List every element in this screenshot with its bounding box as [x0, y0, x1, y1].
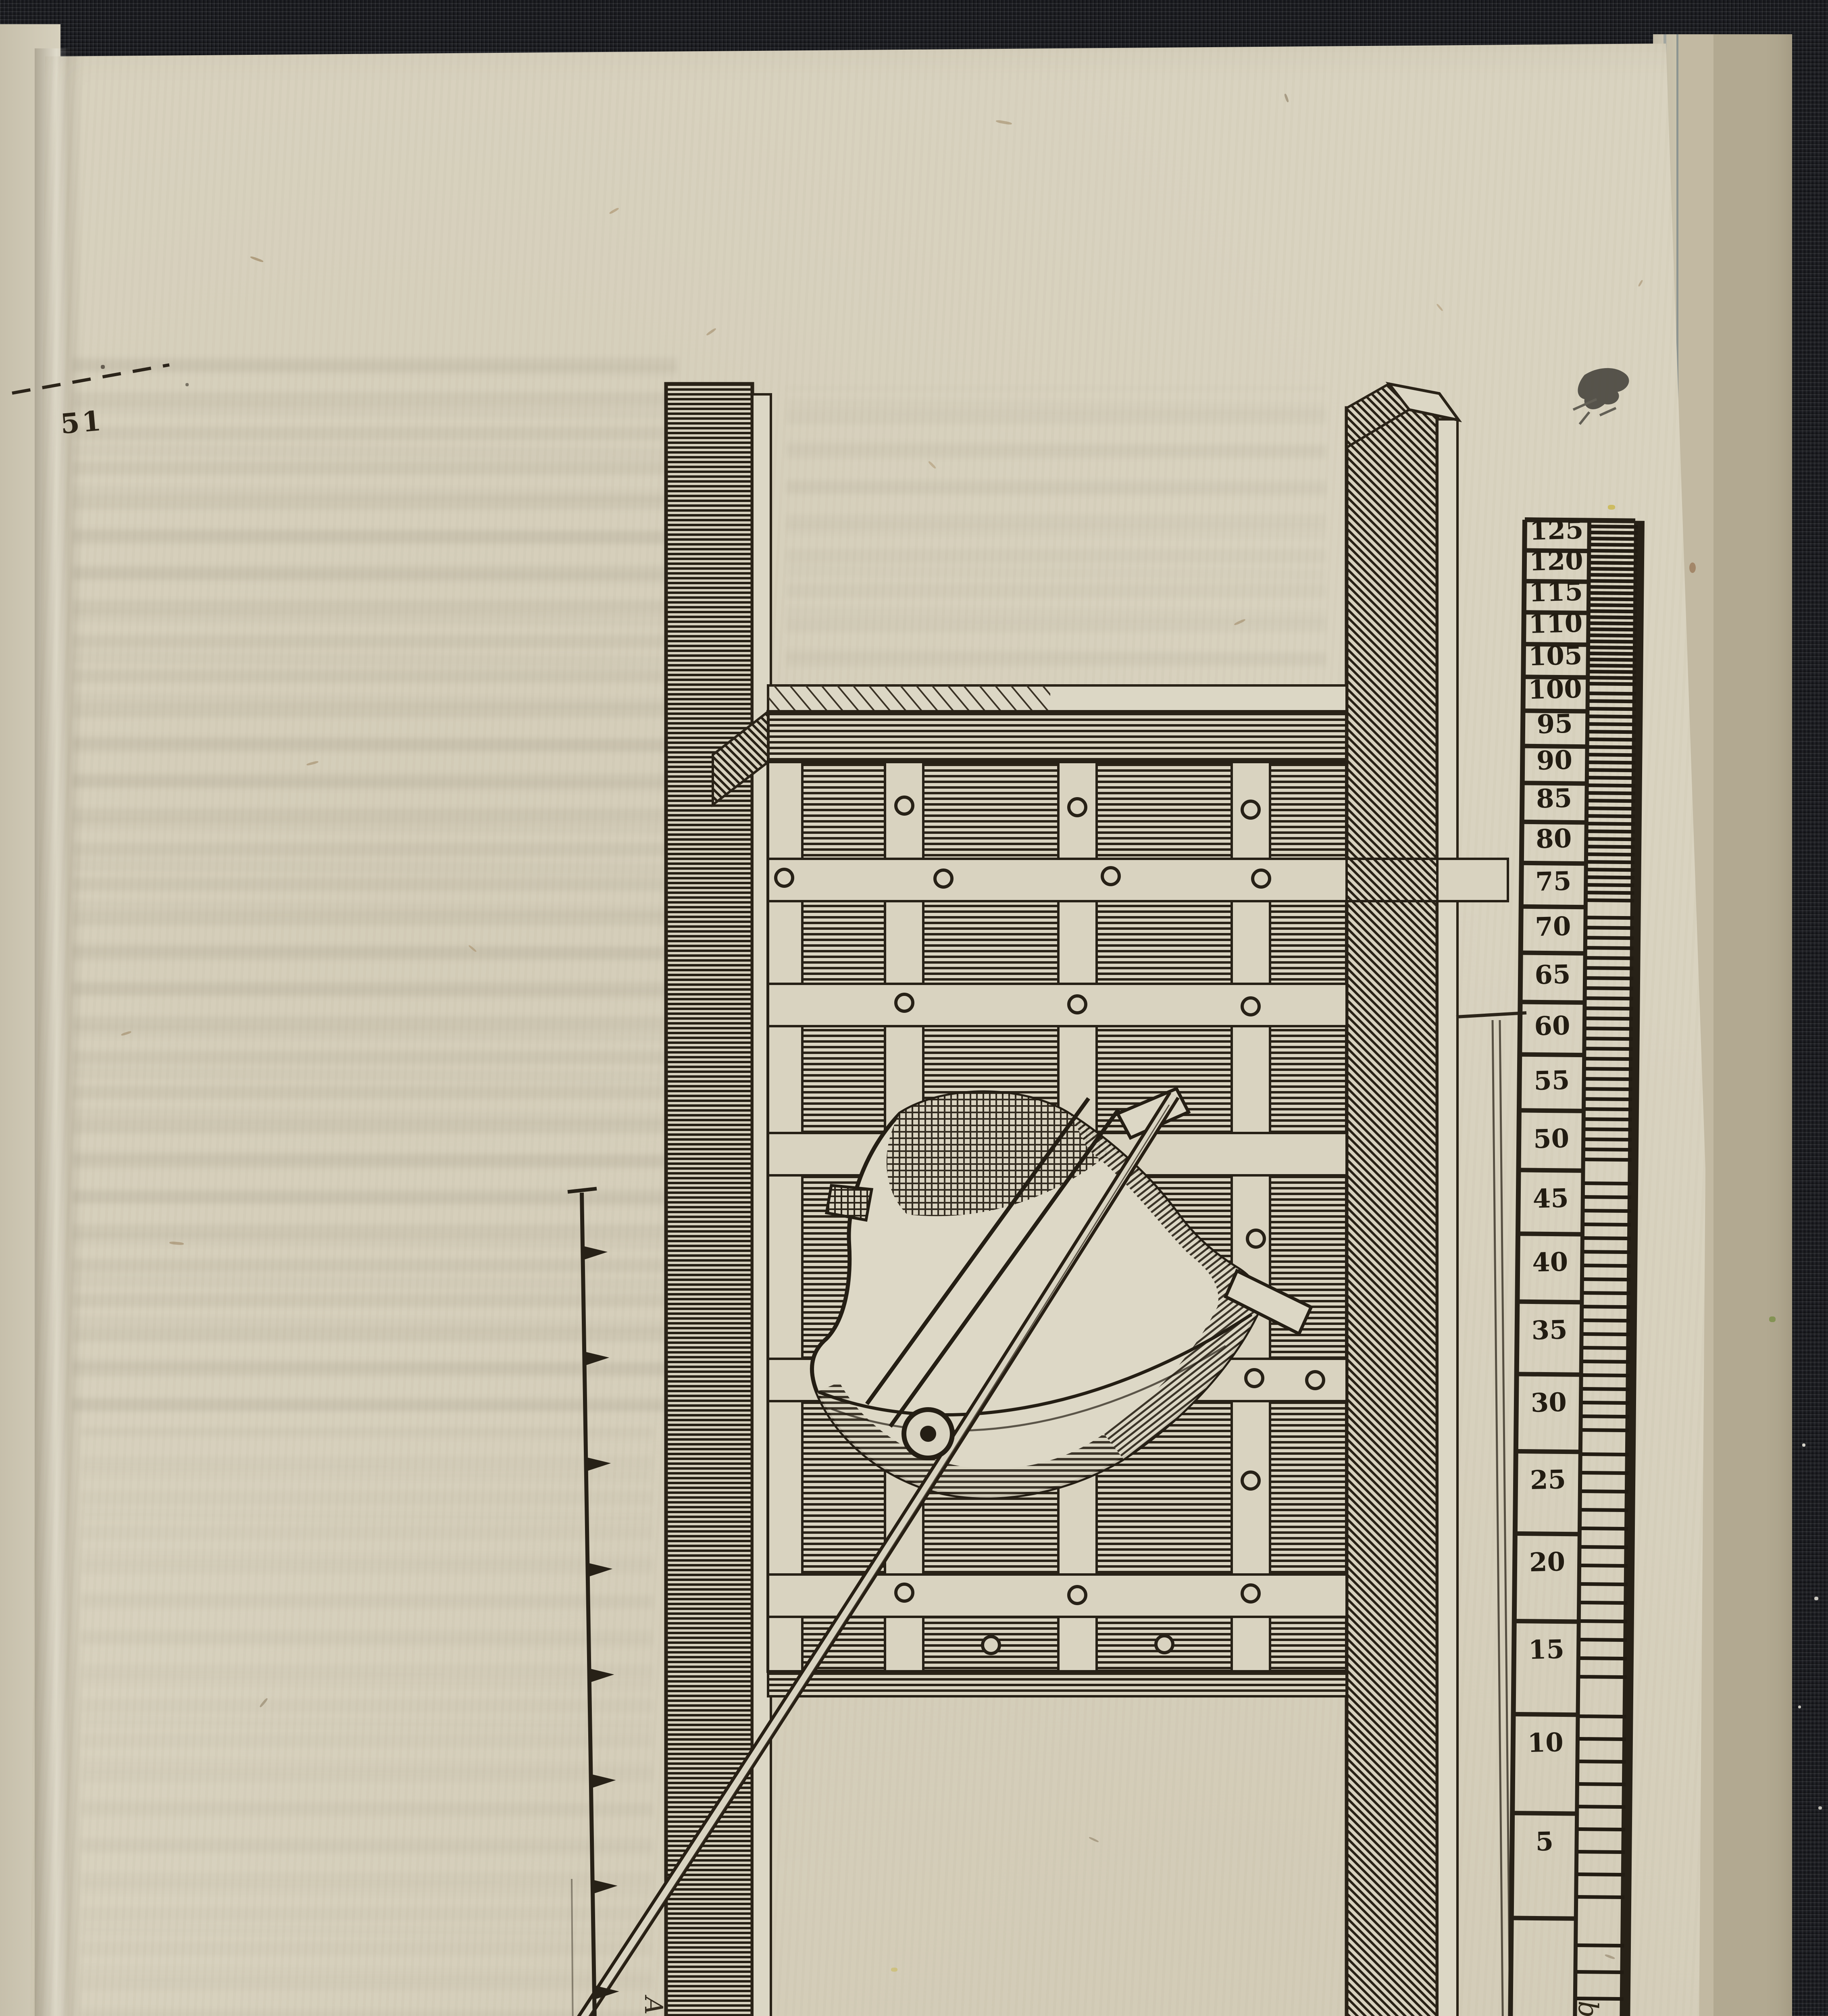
ruler-hatch-rung [1591, 569, 1637, 569]
beam-front-face [768, 712, 1347, 762]
ruler-hatch-rung [1591, 539, 1638, 539]
ruler-hatch-rung [1590, 641, 1636, 642]
book-scan: 1251201151101051009590858075706560555045… [0, 0, 1828, 2016]
measure-line [582, 1193, 604, 2016]
ruler-value: 110 [1528, 608, 1583, 639]
ruler-hatch-rung [1581, 1547, 1628, 1547]
ruler-hatch-rung [1579, 1761, 1626, 1762]
paper-fleck [185, 383, 189, 386]
measure-tick [587, 1563, 612, 1577]
ruler-hatch-rung [1591, 575, 1637, 575]
ruler-hatch-rung [1578, 1829, 1625, 1829]
rivet [896, 994, 913, 1011]
ruler-value: 75 [1535, 866, 1572, 897]
rivet [776, 869, 793, 886]
ruler-hatch-rung [1589, 724, 1636, 725]
ruler-hatch-rung [1590, 617, 1637, 618]
ruler-hatch-rung [1588, 801, 1635, 801]
paper-fleck [1798, 1706, 1801, 1708]
ruler-hatch-rung [1582, 1403, 1629, 1403]
ruler-hatch-rung [1586, 1039, 1633, 1039]
paper-fleck [101, 365, 105, 369]
ruler-hatch-rung [1590, 629, 1636, 630]
right-post-side-face [1437, 419, 1457, 2016]
ruler-hatch-rung [1591, 581, 1637, 581]
ruler-line [1517, 1374, 1581, 1375]
ruler-hatch-rung [1584, 1279, 1630, 1280]
ruler-hatch-rung [1586, 978, 1633, 979]
ruler-hatch-rung [1591, 557, 1637, 557]
ruler-line [1520, 1054, 1584, 1055]
ruler-hatch-rung [1586, 988, 1633, 989]
ruler-right-border [1619, 521, 1639, 2016]
ruler-hatch-rung [1587, 938, 1634, 938]
ruler-hatch-rung [1583, 1320, 1630, 1321]
ruler-hatch-rung [1588, 808, 1635, 809]
ruler-hatch-rung [1584, 1197, 1631, 1198]
ruler-value: 30 [1530, 1387, 1567, 1418]
ruler-value: 35 [1531, 1315, 1568, 1346]
measure-line-top-bar [568, 1189, 597, 1192]
rivet [896, 797, 913, 814]
ruler-value: 95 [1537, 709, 1573, 740]
ruler-hatch-rung [1582, 1416, 1629, 1417]
ruler-hatch-rung [1584, 1183, 1631, 1184]
paper-fleck [1608, 505, 1615, 510]
ruler-line [1522, 822, 1586, 823]
measuring-line [568, 1189, 627, 2016]
measure-tick [584, 1352, 609, 1365]
ruler-hatch-rung [1580, 1677, 1626, 1677]
ruler-hatch-rung [1590, 623, 1637, 624]
ruler-hatch-rung [1584, 1293, 1630, 1293]
ruler-value: 65 [1534, 959, 1571, 990]
rivet [1253, 870, 1270, 887]
ruler-hatch-rung [1578, 1897, 1624, 1897]
ruler-hatch-rung [1585, 1139, 1632, 1140]
ruler-line [1514, 1714, 1578, 1715]
ruler-hatch-rung [1580, 1658, 1627, 1659]
ruler-hatch-rung [1585, 1150, 1632, 1150]
ruler-hatch-rung [1587, 900, 1634, 901]
rivet [1156, 1636, 1173, 1653]
ruler-hatch-rung [1585, 1099, 1632, 1100]
ruler-hatch-rung [1590, 599, 1637, 600]
rivet [1246, 1370, 1263, 1387]
ruler-hatch-rung [1590, 587, 1637, 587]
ruler-hatch-rung [1583, 1334, 1630, 1335]
ruler-hatch-rung [1588, 854, 1634, 855]
ruler-hatch-rung [1586, 968, 1633, 968]
ruler-hatch-rung [1589, 747, 1636, 748]
ruler-hatch-rung [1577, 1998, 1624, 1999]
ruler-hatch-rung [1586, 1008, 1633, 1009]
ruler-hatch-rung [1587, 928, 1634, 928]
ruler-value: 15 [1528, 1634, 1565, 1665]
rivet [1247, 1230, 1264, 1247]
ruler-value: 70 [1534, 911, 1571, 942]
ruler-hatch-rung [1587, 958, 1634, 958]
graduated-ruler: 1251201151101051009590858075706560555045… [1505, 514, 1639, 2016]
ruler-hatch-rung [1589, 716, 1636, 717]
ruler-hatch-rung [1582, 1430, 1629, 1431]
right-scale-label: bley kugel [1572, 2001, 1603, 2016]
ruler-hatch-rung [1586, 1059, 1632, 1059]
rivet [1242, 1585, 1259, 1602]
ruler-line [1519, 1170, 1583, 1171]
ruler-hatch-rung [1578, 1874, 1625, 1874]
dashed-margin-line [12, 365, 169, 393]
ruler-line [1520, 1002, 1585, 1003]
ruler-value: 90 [1536, 745, 1573, 776]
ruler-hatch-rung [1589, 694, 1636, 694]
ruler-hatch-rung [1586, 1049, 1632, 1049]
ruler-hatch-rung [1585, 1119, 1632, 1120]
ruler-hatch-rung [1580, 1621, 1627, 1622]
rivet [983, 1637, 999, 1654]
ruler-hatch-rung [1588, 831, 1635, 832]
ruler-line [1521, 953, 1585, 954]
ruler-hatch-rung [1589, 770, 1635, 771]
ruler-hatch-rung [1584, 1252, 1631, 1252]
ruler-hatch-rung [1589, 739, 1636, 740]
ruler-hatch-rung [1590, 605, 1637, 606]
rivet [1069, 996, 1086, 1013]
ruler-hatch-rung [1587, 885, 1634, 885]
ruler-hatch-rung [1583, 1348, 1630, 1348]
ruler-hatch-rung [1582, 1454, 1629, 1455]
ruler-hatch-rung [1581, 1529, 1628, 1529]
ruler-value: 120 [1529, 545, 1583, 577]
ruler-hatch-rung [1582, 1473, 1628, 1473]
ruler-hatch-rung [1585, 1109, 1632, 1110]
ruler-hatch-rung [1591, 563, 1637, 563]
ruler-hatch-rung [1586, 1069, 1632, 1069]
ruler-hatch-rung [1585, 1160, 1632, 1160]
ruler-hatch-rung [1589, 762, 1635, 763]
ruler-hatch-rung [1588, 816, 1635, 816]
rivet [896, 1584, 913, 1601]
ruler-hatch-rung [1588, 877, 1634, 878]
engraving-plate: 1251201151101051009590858075706560555045… [0, 0, 1828, 2016]
ruler-value: 25 [1530, 1464, 1566, 1495]
ruler-value: 40 [1532, 1247, 1568, 1278]
ruler-value: 50 [1533, 1123, 1570, 1154]
ruler-hatch-rung [1589, 755, 1635, 755]
ruler-hatch-rung [1587, 918, 1634, 918]
ruler-hatch-rung [1581, 1566, 1628, 1566]
ruler-hatch-rung [1589, 778, 1635, 778]
ruler-hatch-rung [1591, 545, 1637, 545]
ruler-hatch-rung [1590, 593, 1637, 594]
ruler-hatch-rung [1583, 1307, 1630, 1307]
ruler-line [1519, 1110, 1584, 1111]
ruler-line [1512, 1918, 1576, 1919]
ruler-line [1514, 1621, 1579, 1622]
ruler-hatch-rung [1590, 648, 1636, 648]
ruler-value: 100 [1528, 674, 1582, 705]
ruler-line [1512, 1813, 1577, 1814]
rivet [1069, 799, 1086, 816]
ruler-hatch-rung [1586, 1029, 1633, 1029]
ruler-hatch-rung [1590, 660, 1636, 660]
rivet [1307, 1372, 1324, 1389]
ruler-hatch-rung [1580, 1640, 1627, 1640]
right-post [1347, 408, 1437, 2016]
pivot-ring-hole [920, 1426, 936, 1442]
ruler-hatch-rung [1588, 862, 1634, 862]
ruler-hatch-rung [1580, 1603, 1627, 1603]
ruler-hatch-rung [1578, 1806, 1625, 1807]
ruler-value: 55 [1533, 1065, 1570, 1096]
ruler-hatch-rung [1580, 1716, 1626, 1716]
ruler-hatch-rung [1586, 1018, 1633, 1019]
measure-tick [593, 1880, 618, 1893]
ruler-line [1516, 1451, 1580, 1452]
ruler-hatch-rung [1581, 1584, 1628, 1585]
ruler-line [1522, 863, 1586, 864]
measure-tick [583, 1246, 608, 1260]
ruler-value: 125 [1529, 514, 1584, 546]
ink-smudge [1573, 368, 1629, 424]
ruler-hatch-rung [1585, 1129, 1632, 1130]
ruler-value: 20 [1529, 1547, 1566, 1578]
rivet [935, 870, 952, 887]
ruler-hatch-rung [1589, 785, 1635, 786]
ruler-value: 85 [1536, 783, 1572, 814]
ruler-hatch-rung [1586, 1079, 1632, 1079]
ruler-hatch-rung [1587, 948, 1634, 948]
ruler-line [1518, 1234, 1582, 1235]
ruler-hatch-rung [1590, 654, 1636, 654]
ruler-hatch-rung [1589, 793, 1635, 793]
ruler-line [1521, 906, 1586, 907]
ruler-hatch-rung [1589, 672, 1636, 672]
page-number: 51 [59, 405, 105, 441]
ruler-hatch-rung [1588, 847, 1634, 847]
measure-tick [591, 1774, 616, 1788]
ruler-hatch-rung [1584, 1266, 1630, 1266]
ruler-hatch-rung [1591, 527, 1638, 527]
lattice-bottom-rail [768, 1671, 1347, 1696]
left-scale-label: Augsburgischer halber schuch [639, 1995, 668, 2016]
ruler-value: 80 [1535, 823, 1572, 854]
ruler-hatch-rung [1590, 666, 1636, 666]
rivet [1242, 1472, 1259, 1489]
ruler-line [1517, 1302, 1582, 1302]
ruler-hatch-rung [1583, 1362, 1630, 1362]
ruler-hatch-rung [1589, 709, 1636, 709]
paper-fleck [1814, 1597, 1818, 1600]
paper-fleck [1802, 1443, 1805, 1447]
ruler-hatch-rung [1577, 1972, 1624, 1972]
ruler-line [1515, 1533, 1580, 1534]
ruler-hatch-rung [1590, 635, 1636, 636]
rivet [1242, 801, 1259, 818]
measure-tick [589, 1668, 614, 1682]
rivet [1069, 1587, 1086, 1604]
ruler-hatch-rung [1579, 1784, 1626, 1784]
ruler-hatch-rung [1577, 1945, 1624, 1945]
ruler-hatch-rung [1584, 1238, 1631, 1239]
ruler-hatch-rung [1582, 1389, 1629, 1389]
ruler-value: 10 [1527, 1727, 1564, 1758]
ruler-hatch-rung [1588, 870, 1634, 870]
ruler-hatch-rung [1578, 1851, 1625, 1852]
rivet [1242, 998, 1259, 1015]
ruler-value: 105 [1528, 640, 1582, 672]
paper-fleck [1818, 1806, 1822, 1810]
ruler-hatch-rung [1590, 611, 1637, 612]
ruler-value: 45 [1532, 1183, 1569, 1214]
paper-fleck [1769, 1316, 1776, 1322]
ruler-hatch-rung [1579, 1739, 1626, 1739]
ruler-hatch-rung [1584, 1225, 1631, 1225]
ruler-hatch-rung [1589, 678, 1636, 678]
ruler-hatch-rung [1581, 1510, 1628, 1510]
measure-tick [586, 1457, 611, 1471]
ruler-hatch-rung [1589, 701, 1636, 702]
ruler-hatch-rung [1591, 533, 1638, 533]
ruler-hatch-rung [1589, 732, 1636, 732]
ruler-hatch-rung [1588, 824, 1635, 824]
rivet [1102, 868, 1119, 885]
paper-fleck [891, 1968, 897, 1972]
ruler-hatch-rung [1582, 1491, 1628, 1492]
ruler-hatch-rung [1588, 839, 1634, 839]
ruler-hatch-rung [1585, 1089, 1632, 1089]
ruler-hatch-rung [1583, 1375, 1630, 1376]
ruler-hatch-rung [1591, 551, 1637, 551]
ruler-value: 115 [1528, 576, 1583, 608]
paper-crease-line [572, 1879, 577, 2016]
ruler-value: 5 [1535, 1826, 1554, 1857]
ruler-hatch-rung [1587, 893, 1634, 893]
ruler-hatch-rung [1586, 998, 1633, 999]
strap-over-post [1347, 859, 1437, 901]
ruler-hatch-rung [1584, 1211, 1631, 1211]
ruler-hatch-rung [1589, 684, 1636, 684]
ruler-value: 60 [1534, 1010, 1570, 1041]
bell-left-lug [827, 1185, 872, 1220]
